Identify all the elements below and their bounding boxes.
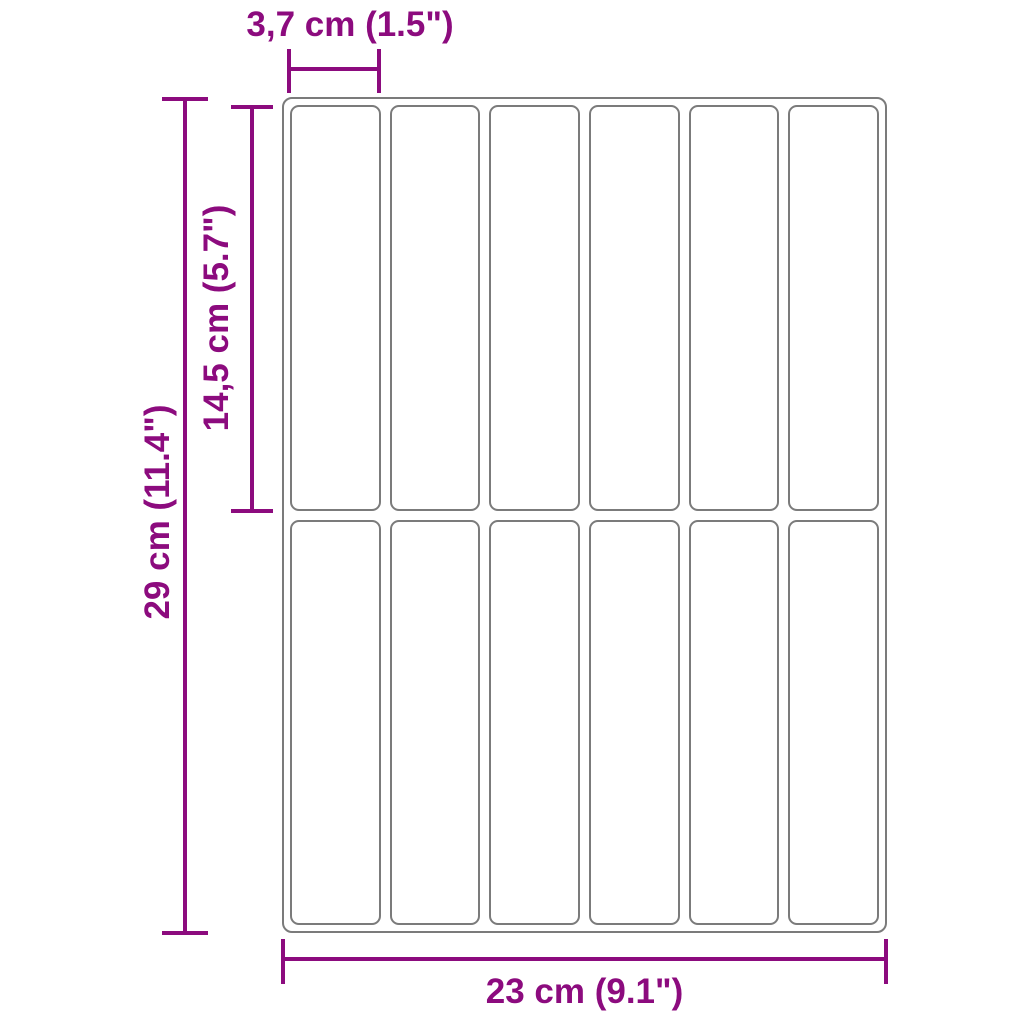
label-cell [589,105,680,511]
label-cell [290,520,381,926]
dim-cell-width-tick-right [377,49,381,93]
label-cell [689,105,780,511]
label-cell [390,520,481,926]
label-cell [290,105,381,511]
dim-sheet-height-tick-top [162,97,208,101]
dim-cell-width-line [287,67,381,71]
dim-cell-height-tick-bottom [231,509,273,513]
dim-sheet-width-line [281,957,888,961]
label-cell [689,520,780,926]
dimension-diagram: 3,7 cm (1.5") 29 cm (11.4") 14,5 cm (5.7… [0,0,1024,1024]
dim-cell-width-label: 3,7 cm (1.5") [235,5,465,45]
dim-sheet-height-tick-bottom [162,931,208,935]
label-cell [489,520,580,926]
label-grid [284,99,885,931]
dim-cell-width-tick-left [287,49,291,93]
dim-sheet-height-label: 29 cm (11.4") [138,332,178,692]
label-cell [489,105,580,511]
dim-sheet-width-label: 23 cm (9.1") [282,972,887,1012]
label-sheet [282,97,887,933]
label-cell [589,520,680,926]
dim-cell-height-label: 14,5 cm (5.7") [197,138,237,498]
label-cell [788,520,879,926]
dim-sheet-height-line [183,97,187,935]
label-cell [390,105,481,511]
dim-cell-height-tick-top [231,105,273,109]
dim-cell-height-line [250,105,254,513]
label-cell [788,105,879,511]
